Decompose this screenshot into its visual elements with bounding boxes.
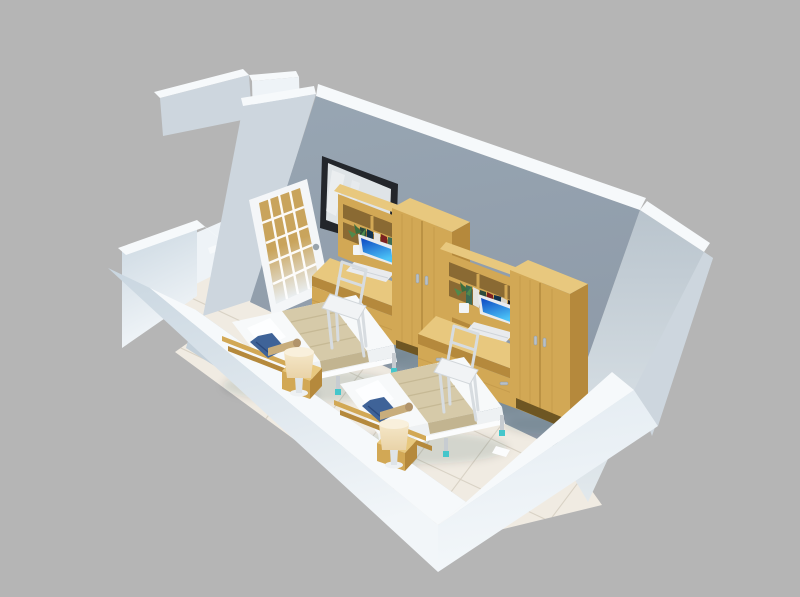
drawer-handle xyxy=(500,382,508,385)
lamp-stem xyxy=(295,378,303,393)
lamp-shade-top xyxy=(284,347,314,357)
wardrobe-handle xyxy=(416,274,419,283)
lamp-stem xyxy=(390,450,398,465)
bolster-end xyxy=(405,403,413,412)
isometric-room-render xyxy=(0,0,800,597)
bed-foot-cap xyxy=(443,451,449,457)
wardrobe-handle xyxy=(534,336,537,345)
wardrobe-handle xyxy=(425,276,428,285)
bed-leg xyxy=(392,353,396,369)
door-knob xyxy=(313,244,319,250)
bed-leg xyxy=(500,415,504,431)
bed-foot-cap xyxy=(335,389,341,395)
wardrobe-handle xyxy=(543,338,546,347)
plant-pot xyxy=(459,303,469,313)
bolster-end xyxy=(293,339,301,348)
bed-leg xyxy=(444,438,448,452)
bed-foot-cap xyxy=(499,430,505,436)
lamp-shade-top xyxy=(379,419,409,429)
bed-leg xyxy=(336,376,340,390)
room-render-stage xyxy=(0,0,800,597)
